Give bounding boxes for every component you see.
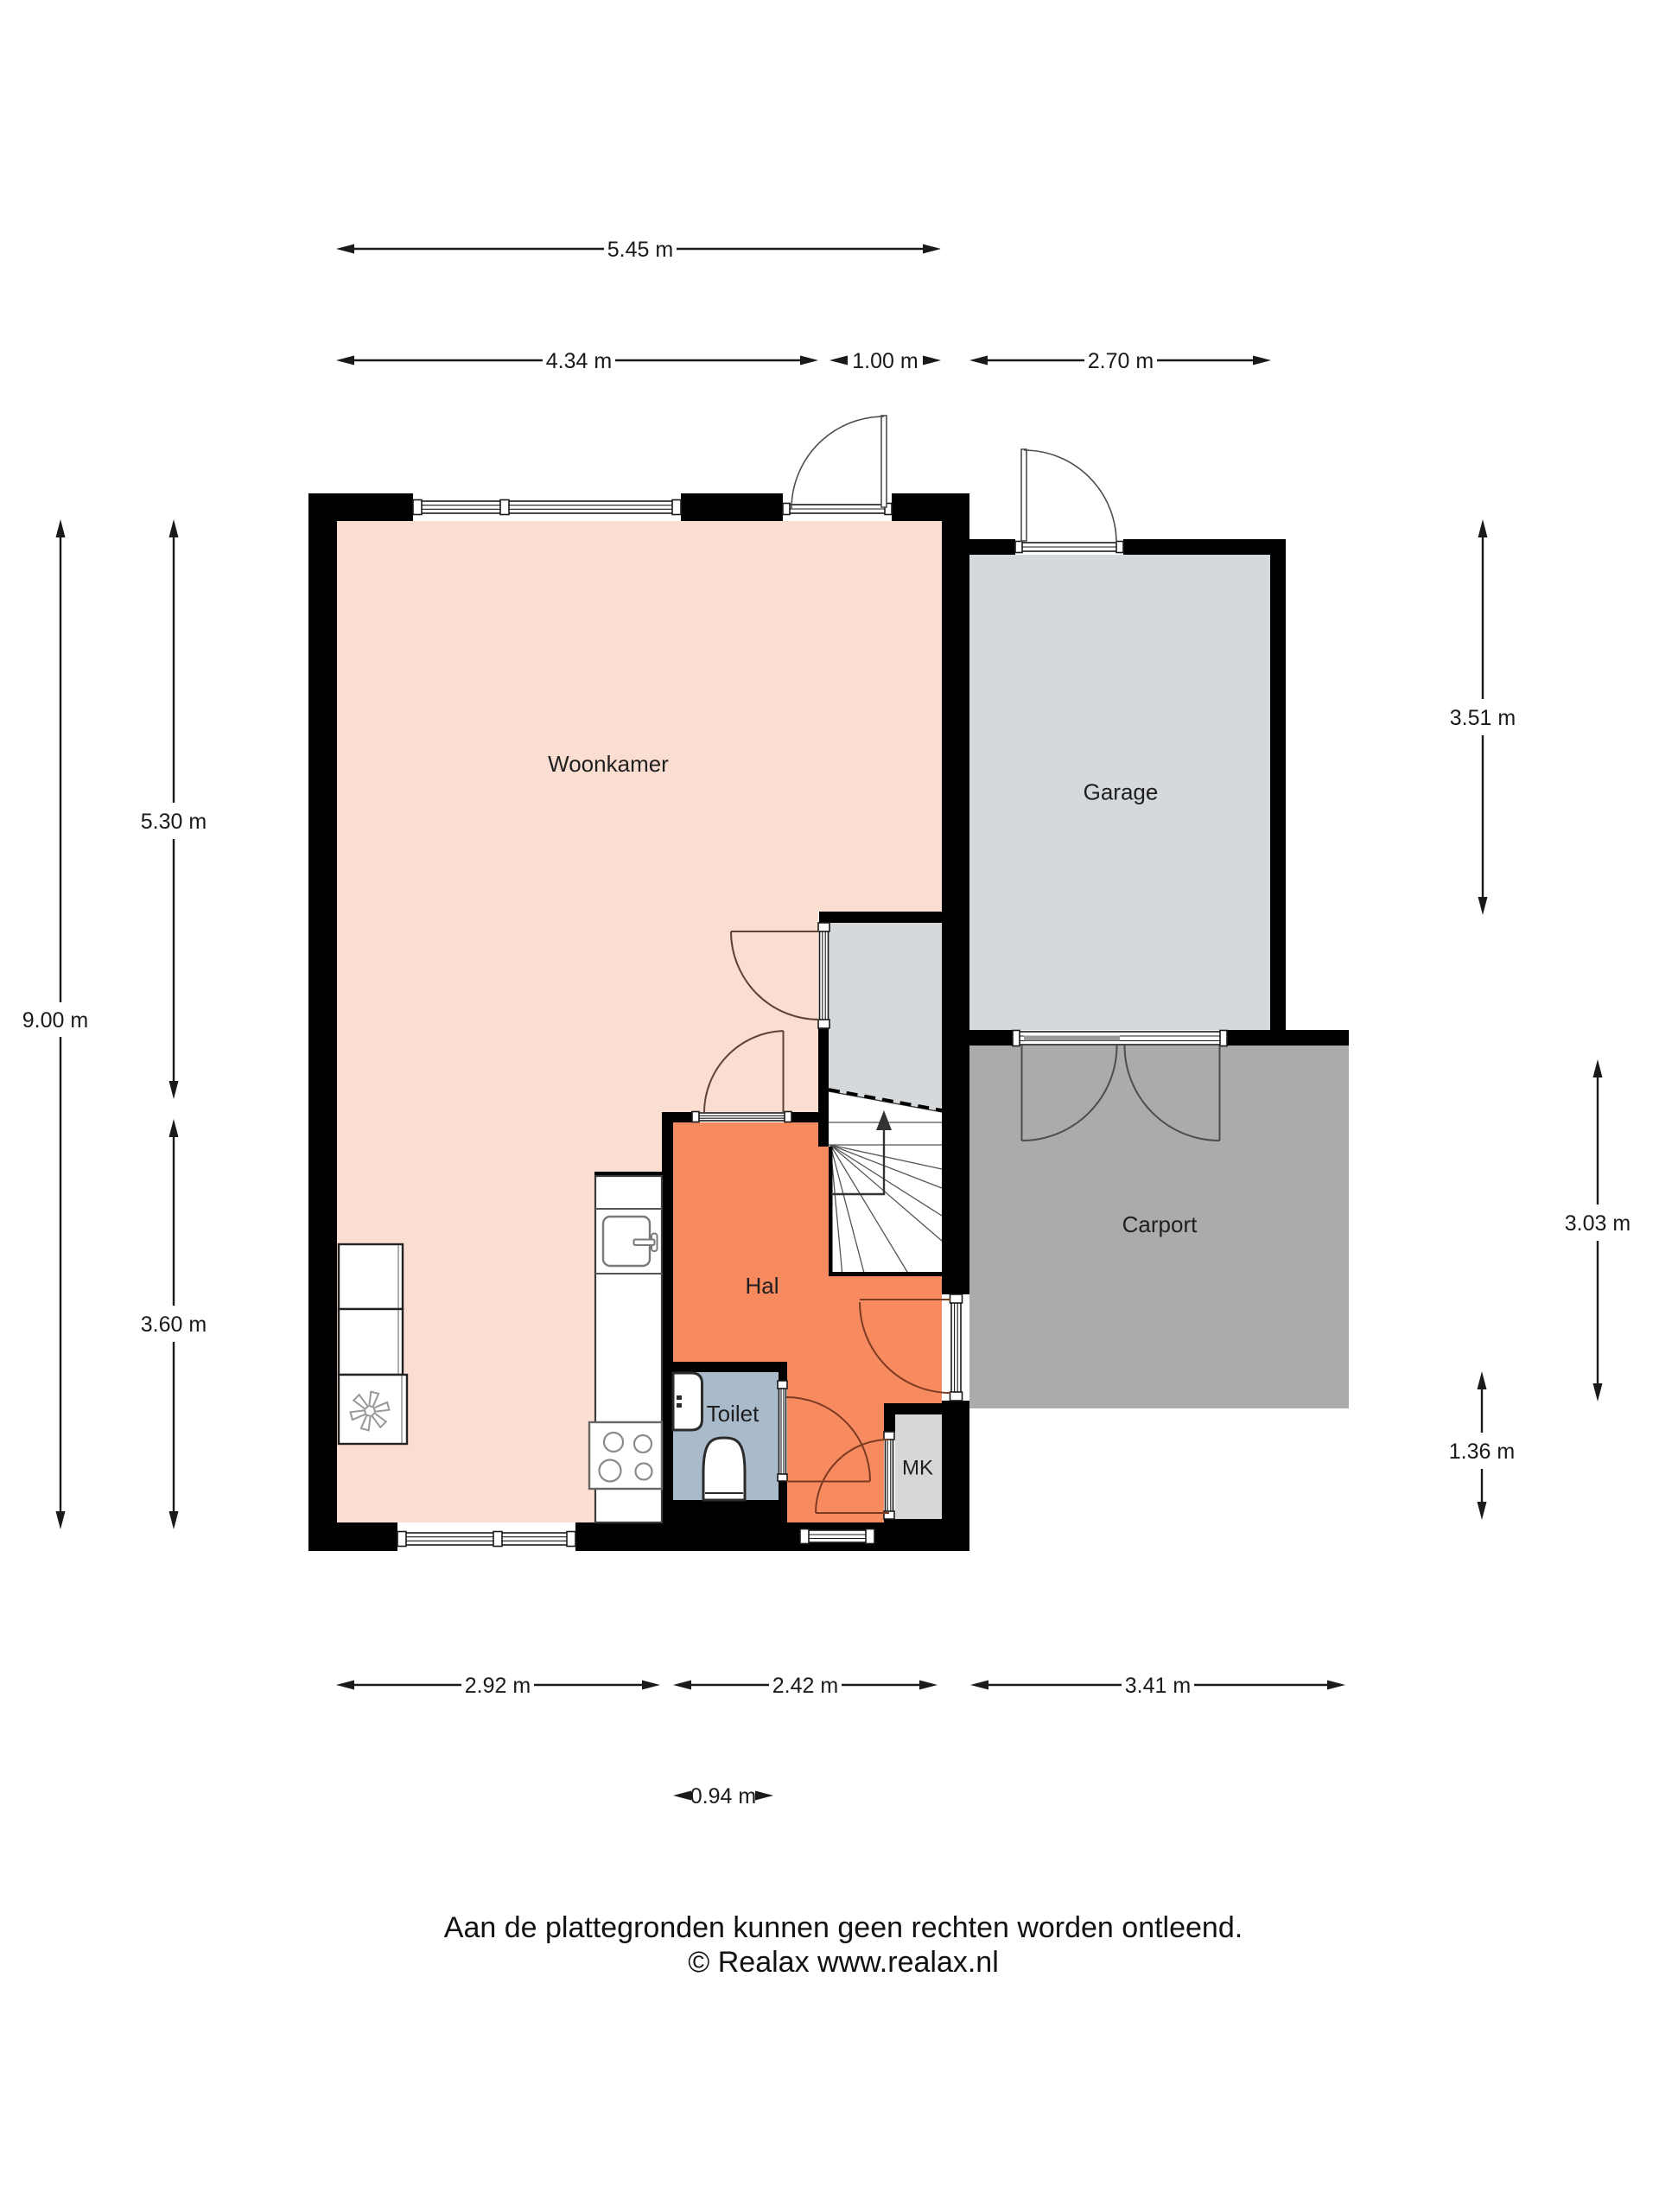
svg-text:Carport: Carport [1122, 1211, 1198, 1237]
svg-text:4.34 m: 4.34 m [546, 349, 612, 373]
svg-text:2.42 m: 2.42 m [772, 1674, 838, 1698]
svg-text:© Realax www.realax.nl: © Realax www.realax.nl [688, 1946, 999, 1979]
svg-text:2.70 m: 2.70 m [1088, 349, 1154, 373]
svg-text:Hal: Hal [745, 1273, 779, 1299]
svg-text:Woonkamer: Woonkamer [548, 751, 669, 777]
svg-text:Toilet: Toilet [707, 1401, 760, 1427]
svg-text:1.36 m: 1.36 m [1449, 1440, 1515, 1464]
svg-text:3.03 m: 3.03 m [1565, 1211, 1630, 1236]
svg-text:1.00 m: 1.00 m [852, 349, 918, 373]
svg-text:3.60 m: 3.60 m [141, 1313, 207, 1337]
svg-text:Garage: Garage [1084, 779, 1159, 805]
svg-text:5.30 m: 5.30 m [141, 810, 207, 834]
svg-text:9.00 m: 9.00 m [22, 1008, 88, 1033]
svg-text:5.45 m: 5.45 m [607, 238, 673, 262]
svg-text:0.94 m: 0.94 m [690, 1784, 756, 1808]
svg-text:MK: MK [902, 1457, 933, 1480]
svg-text:3.41 m: 3.41 m [1125, 1674, 1191, 1698]
svg-text:3.51 m: 3.51 m [1450, 706, 1516, 730]
svg-text:2.92 m: 2.92 m [465, 1674, 531, 1698]
svg-text:Aan de plattegronden kunnen ge: Aan de plattegronden kunnen geen rechten… [444, 1911, 1243, 1944]
